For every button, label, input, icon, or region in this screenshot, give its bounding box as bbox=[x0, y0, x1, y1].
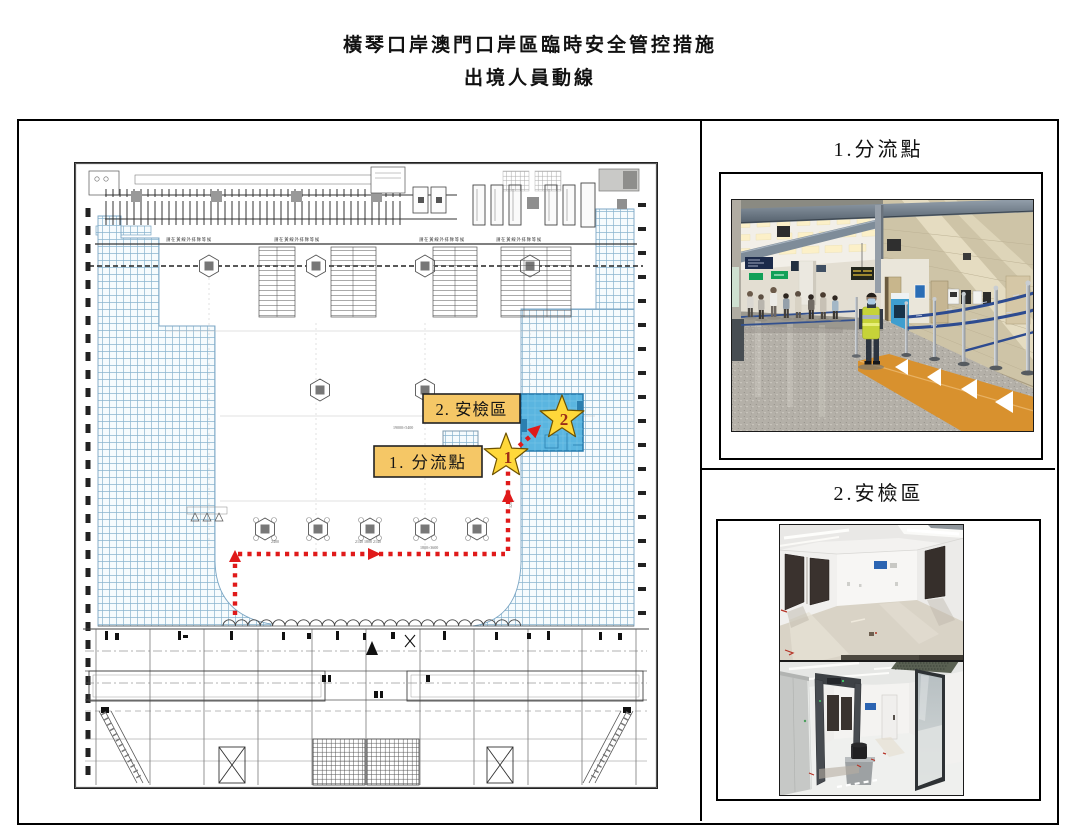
svg-text:2: 2 bbox=[560, 410, 569, 429]
queue-sign-text: 請在黃線外排隊等候 bbox=[496, 236, 542, 243]
svg-text:2400: 2400 bbox=[271, 539, 279, 544]
floor-plan-drawing: 請在黃線外排隊等候 請在黃線外排隊等候 請在黃線外排隊等候 請在黃線外排隊等候 bbox=[75, 163, 657, 788]
photo-divert-point bbox=[731, 199, 1034, 432]
horizontal-divider bbox=[702, 468, 1055, 470]
queue-sign-text: 請在黃線外排隊等候 bbox=[166, 236, 212, 243]
divert-label-text: 1. 分流點 bbox=[389, 453, 467, 472]
photo-security-room-2 bbox=[779, 661, 964, 796]
photo-security-room-1 bbox=[779, 524, 964, 661]
inspection-booth-row bbox=[89, 167, 639, 227]
svg-text:19000×5400: 19000×5400 bbox=[393, 425, 413, 430]
blue-wall-sign bbox=[874, 561, 887, 569]
svg-text:1: 1 bbox=[504, 448, 513, 467]
back-door bbox=[882, 695, 897, 739]
page-title-line2: 出境人員動線 bbox=[0, 63, 1060, 90]
wall-poster-blue bbox=[915, 285, 925, 298]
security-label-text: 2. 安檢區 bbox=[436, 400, 508, 419]
blue-wall-sign bbox=[865, 703, 876, 710]
svg-text:1800×3600: 1800×3600 bbox=[420, 545, 438, 550]
yellow-text-sign bbox=[851, 267, 874, 280]
panel-label-security: 2.安檢區 bbox=[702, 477, 1055, 506]
floor-plan-box: 請在黃線外排隊等候 請在黃線外排隊等候 請在黃線外排隊等候 請在黃線外排隊等候 bbox=[74, 162, 658, 789]
notice-page: 橫琴口岸澳門口岸區臨時安全管控措施 出境人員動線 bbox=[0, 0, 1073, 837]
queue-sign-text: 請在黃線外排隊等候 bbox=[419, 236, 465, 243]
page-title-line1: 橫琴口岸澳門口岸區臨時安全管控措施 bbox=[0, 30, 1060, 57]
panel-label-divert: 1.分流點 bbox=[702, 133, 1055, 162]
vertical-divider bbox=[700, 121, 702, 821]
xray-cabinet bbox=[779, 671, 812, 796]
svg-text:2140 1800 2140: 2140 1800 2140 bbox=[355, 539, 381, 544]
photo-frame-security bbox=[716, 519, 1041, 801]
photo-frame-divert bbox=[719, 172, 1043, 460]
queue-sign-text: 請在黃線外排隊等候 bbox=[274, 236, 320, 243]
